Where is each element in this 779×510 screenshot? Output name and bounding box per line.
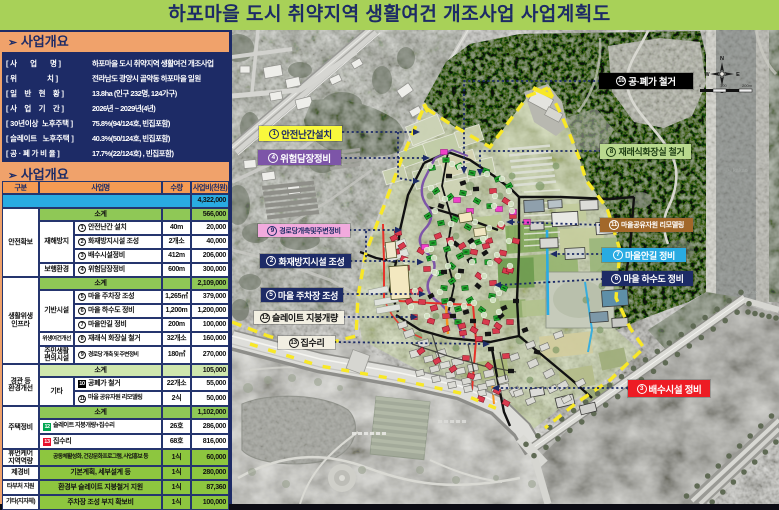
svg-text:100: 100 bbox=[720, 83, 727, 88]
svg-text:N: N bbox=[720, 56, 724, 62]
svg-text:W: W bbox=[704, 72, 710, 78]
svg-text:200m: 200m bbox=[742, 83, 753, 88]
svg-text:ⓒ kakao: ⓒ kakao bbox=[726, 166, 748, 174]
svg-text:E: E bbox=[736, 72, 740, 78]
